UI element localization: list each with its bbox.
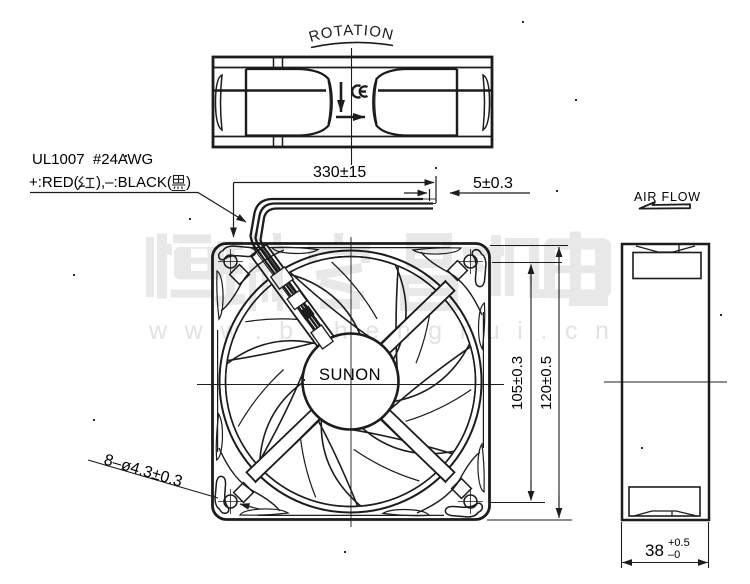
svg-text:38: 38 — [645, 541, 664, 560]
svg-text:+:RED(: +:RED( — [29, 174, 79, 191]
svg-text:120±0.5: 120±0.5 — [538, 356, 555, 410]
svg-text:UL1007 #24AWG: UL1007 #24AWG — [32, 151, 153, 168]
svg-text:–0: –0 — [668, 549, 680, 561]
svg-text:),–:BLACK(: ),–:BLACK( — [96, 174, 172, 191]
svg-text:AIR FLOW: AIR FLOW — [634, 190, 701, 204]
svg-text:5±0.3: 5±0.3 — [473, 175, 513, 192]
svg-text:SUNON: SUNON — [319, 366, 381, 384]
svg-text:105±0.3: 105±0.3 — [509, 356, 526, 410]
svg-text:www.bjhengrui.cn: www.bjhengrui.cn — [148, 317, 627, 345]
svg-text:): ) — [186, 174, 191, 191]
svg-text:+0.5: +0.5 — [668, 537, 690, 549]
svg-text:330±15: 330±15 — [313, 164, 366, 181]
